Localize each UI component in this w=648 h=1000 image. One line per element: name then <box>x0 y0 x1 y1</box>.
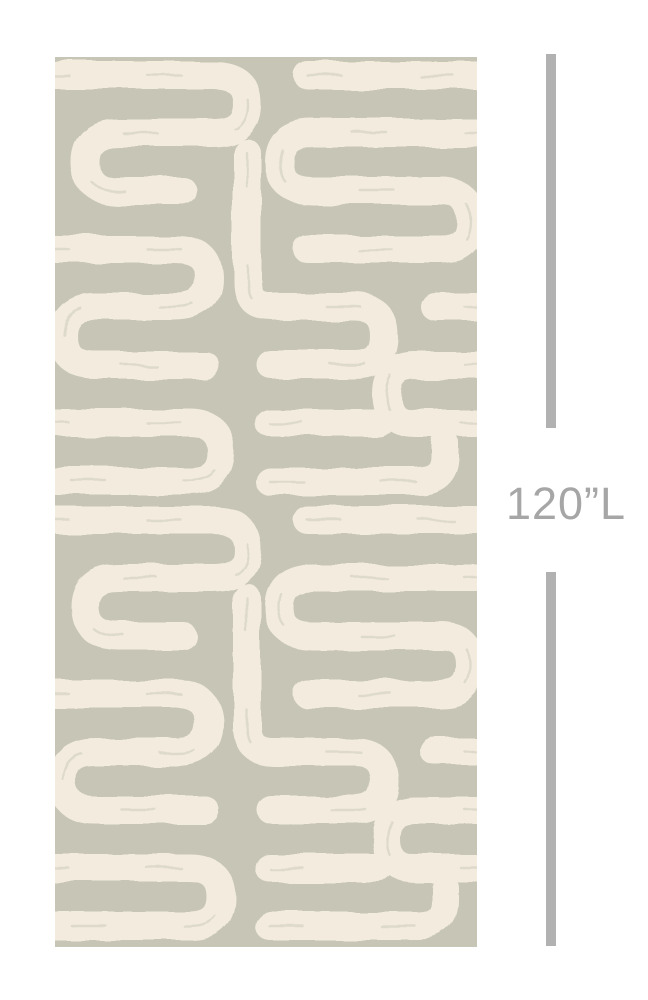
length-measure-line-top <box>546 54 556 428</box>
length-measure-line-bottom <box>546 572 556 946</box>
maze-pattern-graphic <box>55 57 477 947</box>
product-dimension-figure: 120”L <box>0 0 648 1000</box>
length-dimension-label: 120”L <box>496 480 636 528</box>
wallpaper-swatch-image <box>55 57 477 947</box>
